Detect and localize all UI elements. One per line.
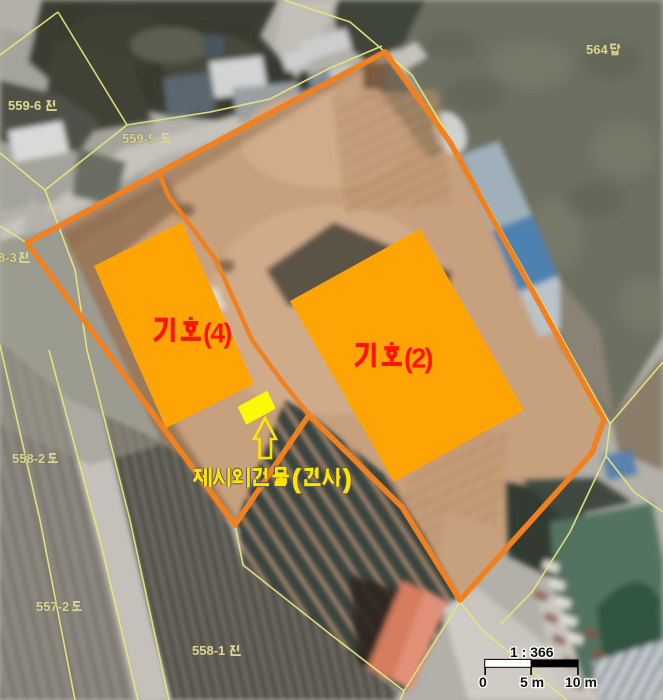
svg-text:564: 564 — [586, 42, 608, 57]
svg-text:558-1: 558-1 — [192, 643, 225, 658]
svg-text:(2): (2) — [404, 342, 433, 374]
svg-text:10 m: 10 m — [565, 674, 597, 690]
svg-text:5 m: 5 m — [520, 674, 544, 690]
svg-text:557-2: 557-2 — [36, 599, 69, 614]
svg-text:(: ( — [292, 464, 301, 494]
svg-text:(4): (4) — [203, 317, 232, 349]
svg-text:559-5: 559-5 — [122, 131, 155, 146]
svg-text:559-6: 559-6 — [8, 98, 41, 113]
svg-text:1 : 366: 1 : 366 — [510, 644, 554, 660]
svg-text:0: 0 — [479, 674, 487, 690]
svg-text:8-3: 8-3 — [0, 250, 17, 265]
svg-text:): ) — [343, 464, 352, 494]
svg-text:558-2: 558-2 — [12, 451, 45, 466]
